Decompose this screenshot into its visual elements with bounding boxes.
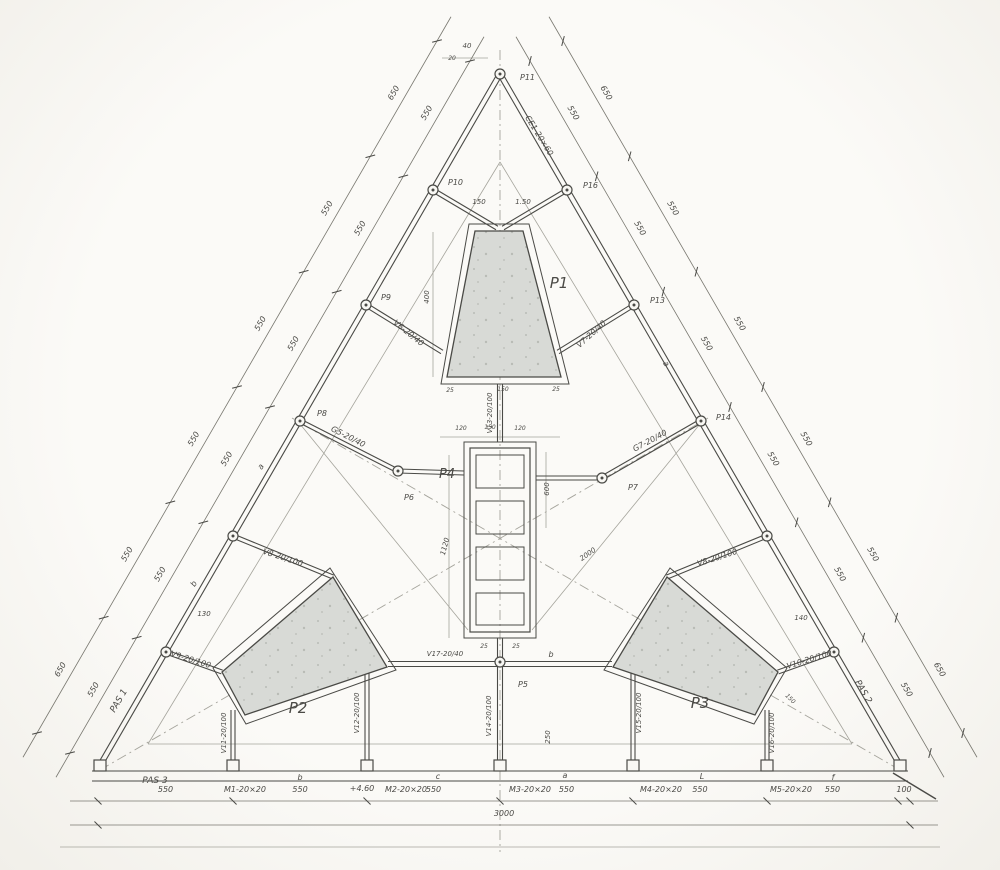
dim-tick [232, 386, 242, 389]
dim-label: 550 [186, 430, 201, 448]
annotation: P16 [583, 181, 598, 190]
dim-label: 3000 [494, 809, 514, 818]
annotation: 25 [480, 643, 488, 650]
annotation: M4-20×20 [640, 785, 682, 794]
dim-tick [32, 732, 42, 735]
node-dot [601, 477, 604, 480]
annotation: V10-20/100 [786, 648, 833, 670]
dim-label: 650 [932, 661, 947, 679]
node-dot [499, 661, 502, 664]
dim-tick [529, 56, 532, 66]
dim-label: 550 [319, 199, 334, 217]
dim-tick [299, 270, 309, 273]
dim-tick [862, 633, 865, 643]
core-p4-label: P4 [439, 467, 455, 482]
annotation: P5 [518, 680, 528, 689]
core-p1-label: P1 [550, 274, 569, 292]
annotation: V14-20/100 [485, 695, 493, 736]
dim-label: 550 [699, 335, 714, 353]
dim-label: 550 [219, 450, 234, 468]
annotation: L [700, 772, 704, 781]
annotation: V8-20/100 [696, 547, 738, 568]
node-dot [432, 189, 435, 192]
column-mark [227, 760, 239, 771]
annotation: V11-20/100 [220, 712, 228, 753]
annotation: 140 [794, 614, 808, 622]
annotation: 150 [784, 692, 797, 705]
node-dot [232, 535, 235, 538]
annotation: P14 [716, 413, 731, 422]
annotation: V16-20/100 [768, 712, 776, 753]
annotation: 1.50 [515, 198, 531, 206]
dim-tick [465, 60, 475, 63]
node-dot [299, 420, 302, 423]
annotation: M5-20×20 [770, 785, 812, 794]
dim-tick [929, 748, 932, 758]
annotation: 2000 [578, 546, 598, 563]
annotation: c [436, 772, 441, 781]
dim-tick [762, 382, 765, 392]
dim-tick [562, 36, 565, 46]
annotation: PAS 3 [142, 776, 168, 786]
column-mark [94, 760, 106, 771]
dim-label: 550 [158, 785, 173, 794]
dim-tick [729, 402, 732, 412]
dim-label: 550 [732, 315, 747, 333]
annotation: b [297, 773, 302, 782]
dim-label: 100 [896, 785, 911, 794]
dim-label: 550 [566, 104, 581, 122]
annotation: +4.60 [350, 784, 375, 793]
dim-label: 650 [386, 84, 401, 102]
dim-label: 550 [86, 681, 101, 699]
node-dot [397, 470, 400, 473]
annotation: 20 [448, 55, 456, 62]
annotation: a [563, 771, 568, 780]
dim-label: 550 [692, 785, 707, 794]
annotation: PAS 1 [109, 687, 130, 714]
annotation: M1-20×20 [224, 785, 266, 794]
dim-tick [65, 752, 75, 755]
dim-tick [432, 40, 442, 43]
dim-label: 550 [665, 199, 680, 217]
annotation: P7 [628, 483, 639, 492]
dim-tick [828, 498, 831, 508]
dim-tick [166, 501, 176, 504]
dim-label: 550 [825, 785, 840, 794]
dim-label: 550 [865, 545, 880, 563]
annotation: 150 [497, 386, 509, 393]
dim-tick [595, 172, 598, 182]
annotation: 120 [514, 425, 526, 432]
beam-edge [301, 419, 399, 469]
annotation: P6 [404, 493, 414, 502]
node-dot [165, 651, 168, 654]
dim-label: 550 [559, 785, 574, 794]
annotation: CE1-20×60 [523, 114, 555, 158]
dim-tick [366, 155, 376, 158]
annotation: V8-20/100 [262, 547, 304, 568]
annotation: V9-20/100 [170, 649, 212, 670]
axis-line [100, 418, 708, 770]
annotation: 25 [446, 387, 454, 394]
annotation: b [548, 650, 553, 659]
annotation: V17-20/40 [427, 650, 464, 658]
beam-edge [502, 188, 566, 226]
dim-label: 550 [152, 565, 167, 583]
dim-label: 550 [766, 450, 781, 468]
annotation: P11 [520, 73, 535, 82]
annotation: P13 [650, 296, 665, 305]
core-p2-label: P2 [289, 699, 308, 717]
dim-label: 550 [352, 219, 367, 237]
beam-edge [434, 188, 498, 226]
node-dot [833, 651, 836, 654]
triangular-plan-drawing: 5505505505505505506505505505505506505505… [0, 0, 1000, 870]
annotation: 120 [455, 425, 467, 432]
annotation: 40 [463, 42, 472, 50]
core-p3-label: P3 [691, 694, 710, 712]
dim-tick [99, 616, 109, 619]
dim-tick [795, 518, 798, 528]
beam-edge [299, 423, 397, 473]
node-dot [566, 189, 569, 192]
dim-tick [695, 267, 698, 277]
dim-tick [265, 406, 275, 409]
annotation: V15-20/100 [635, 692, 643, 733]
dim-label: 550 [253, 315, 268, 333]
dim-label: 550 [799, 430, 814, 448]
annotation: 250 [544, 730, 552, 744]
column-mark [761, 760, 773, 771]
dim-tick [628, 152, 631, 162]
annotation: 130 [197, 610, 211, 618]
dim-label: 550 [292, 785, 307, 794]
dim-label: 550 [832, 565, 847, 583]
node-dot [499, 73, 502, 76]
node-dot [700, 420, 703, 423]
dim-label: 550 [119, 545, 134, 563]
annotation: P8 [317, 409, 327, 418]
dim-tick [399, 175, 409, 178]
dim-label: 550 [899, 681, 914, 699]
column-mark [361, 760, 373, 771]
core-p2 [222, 577, 387, 715]
annotation: b [189, 579, 199, 588]
dim-label: 650 [599, 84, 614, 102]
annotation: 150 [484, 424, 496, 431]
dim-tick [332, 290, 342, 293]
dim-tick [895, 613, 898, 623]
node-dot [766, 535, 769, 538]
axis-line [292, 418, 900, 770]
annotation: 25 [512, 643, 520, 650]
node-dot [633, 304, 636, 307]
annotation: V7-20/40 [575, 319, 608, 350]
annotation: 600 [543, 482, 551, 496]
dim-label: 550 [426, 785, 441, 794]
annotation: P10 [448, 178, 463, 187]
column-mark [494, 760, 506, 771]
annotation: 150 [472, 198, 486, 206]
dim-label: 550 [419, 104, 434, 122]
dim-tick [132, 636, 142, 639]
dim-tick [962, 728, 965, 738]
annotation: a [256, 462, 266, 471]
blueprint-sheet: 5505505505505505506505505505505506505505… [0, 0, 1000, 870]
dim-tick [199, 521, 209, 524]
annotation: 1120 [439, 536, 451, 556]
annotation: V12-20/100 [353, 692, 361, 733]
annotation: 25 [552, 386, 560, 393]
annotation: 400 [423, 290, 431, 304]
dim-label: 650 [53, 661, 68, 679]
node-dot [365, 304, 368, 307]
column-mark [894, 760, 906, 771]
annotation: P9 [381, 293, 391, 302]
dim-label: 550 [286, 335, 301, 353]
annotation: M2-20×20 [385, 785, 427, 794]
column-mark [627, 760, 639, 771]
dim-label: 550 [632, 219, 647, 237]
annotation: M3-20×20 [509, 785, 551, 794]
